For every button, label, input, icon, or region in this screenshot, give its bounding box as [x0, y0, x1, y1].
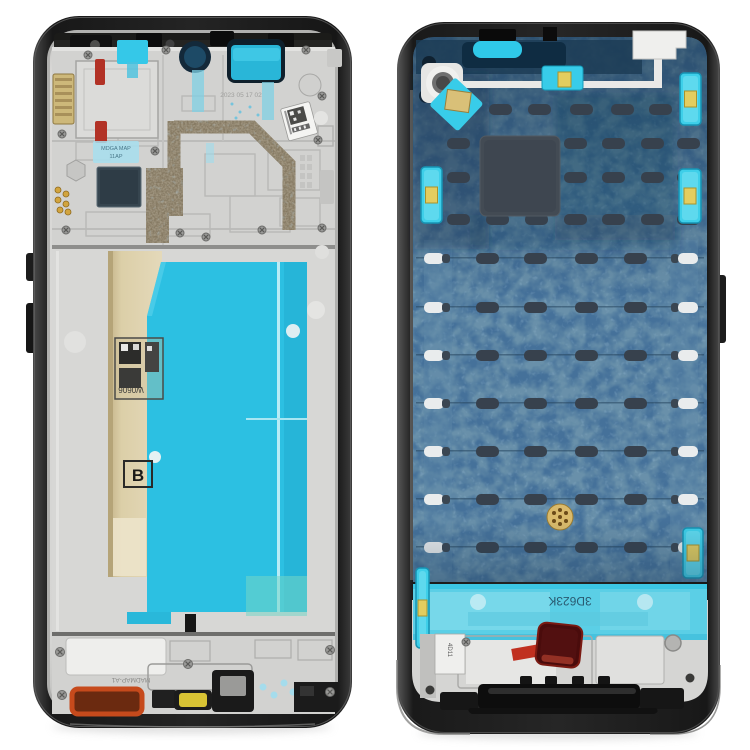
svg-text:B: B — [132, 466, 144, 485]
svg-text:3D623K: 3D623K — [548, 594, 591, 608]
svg-text:MDGA MAP: MDGA MAP — [101, 146, 131, 152]
svg-text:4D11: 4D11 — [446, 643, 452, 658]
svg-text:W0606: W0606 — [118, 385, 144, 394]
svg-text:2023 05 17 02: 2023 05 17 02 — [220, 92, 262, 99]
svg-text:MADMAP-A1: MADMAP-A1 — [111, 676, 150, 683]
svg-text:11AP: 11AP — [109, 154, 122, 160]
